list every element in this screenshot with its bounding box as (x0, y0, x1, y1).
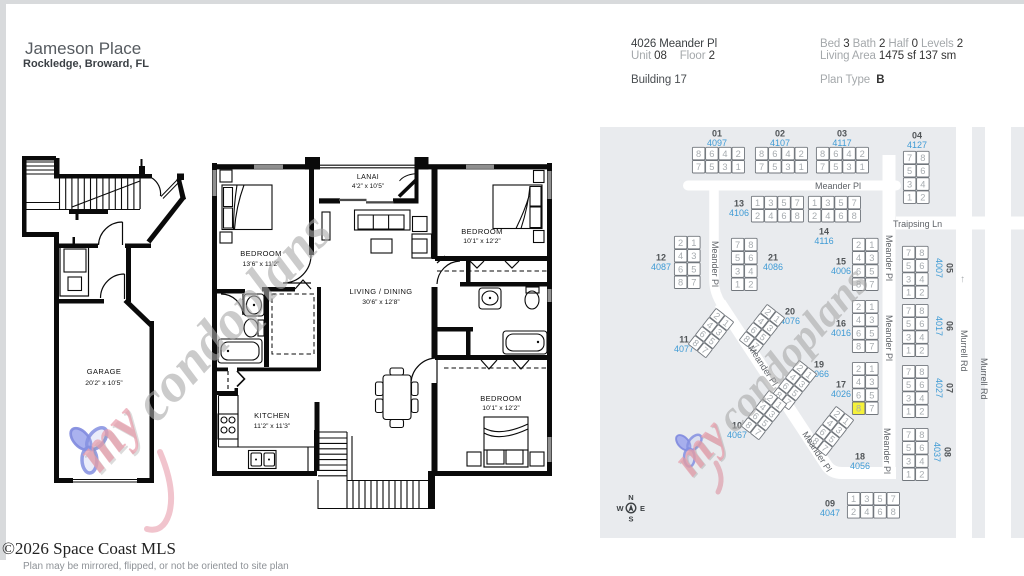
svg-text:1: 1 (906, 346, 911, 356)
svg-text:3: 3 (907, 179, 912, 189)
svg-text:07: 07 (945, 383, 955, 393)
svg-text:2: 2 (919, 407, 924, 417)
svg-text:6: 6 (709, 149, 714, 159)
svg-text:2: 2 (736, 149, 741, 159)
svg-text:4007: 4007 (934, 258, 944, 278)
svg-text:4: 4 (678, 251, 683, 261)
svg-text:Traipsing Ln: Traipsing Ln (893, 219, 942, 229)
svg-text:7: 7 (907, 153, 912, 163)
svg-text:5: 5 (906, 380, 911, 390)
svg-text:Meander Pl: Meander Pl (882, 428, 892, 474)
svg-text:Meander Pl: Meander Pl (884, 235, 894, 281)
svg-text:3: 3 (768, 198, 773, 208)
svg-text:7: 7 (696, 162, 701, 172)
svg-text:LANAI: LANAI (357, 174, 379, 181)
svg-text:8: 8 (852, 211, 857, 221)
svg-text:5: 5 (735, 253, 740, 263)
svg-text:4: 4 (722, 149, 727, 159)
svg-text:8: 8 (856, 404, 861, 414)
svg-text:4107: 4107 (770, 138, 790, 148)
svg-text:8: 8 (759, 149, 764, 159)
svg-text:3: 3 (825, 198, 830, 208)
svg-text:4: 4 (785, 149, 790, 159)
svg-text:6: 6 (920, 166, 925, 176)
svg-text:12: 12 (656, 253, 666, 263)
svg-text:5: 5 (781, 198, 786, 208)
svg-text:18: 18 (855, 452, 865, 462)
svg-text:7: 7 (795, 198, 800, 208)
svg-text:8: 8 (919, 248, 924, 258)
svg-text:1: 1 (906, 288, 911, 298)
svg-text:E: E (640, 504, 645, 513)
svg-text:8: 8 (919, 430, 924, 440)
svg-text:1: 1 (691, 238, 696, 248)
svg-text:10’1” x 12’2”: 10’1” x 12’2” (482, 405, 520, 412)
svg-text:BEDROOM: BEDROOM (480, 394, 522, 403)
svg-text:4037: 4037 (932, 442, 942, 462)
svg-text:1: 1 (869, 240, 874, 250)
svg-text:7: 7 (906, 367, 911, 377)
svg-text:7: 7 (759, 162, 764, 172)
svg-text:10’1” x 12’2”: 10’1” x 12’2” (463, 238, 501, 245)
svg-text:3: 3 (869, 377, 874, 387)
svg-text:2: 2 (856, 240, 861, 250)
svg-text:2: 2 (799, 149, 804, 159)
svg-text:6: 6 (919, 443, 924, 453)
svg-text:1: 1 (812, 198, 817, 208)
svg-text:30’6” x 12’8”: 30’6” x 12’8” (362, 299, 400, 306)
svg-text:Meander Pl: Meander Pl (815, 181, 861, 191)
svg-text:8: 8 (795, 211, 800, 221)
svg-text:6: 6 (856, 390, 861, 400)
svg-text:4: 4 (864, 507, 869, 517)
svg-text:2: 2 (860, 149, 865, 159)
svg-text:4’2” x 10’5”: 4’2” x 10’5” (352, 183, 384, 190)
svg-text:4: 4 (919, 274, 924, 284)
svg-text:06: 06 (945, 321, 955, 331)
svg-text:20’2” x 10’5”: 20’2” x 10’5” (85, 380, 123, 387)
svg-text:6: 6 (919, 380, 924, 390)
svg-text:6: 6 (833, 149, 838, 159)
svg-text:7: 7 (891, 494, 896, 504)
svg-text:7: 7 (852, 198, 857, 208)
svg-text:2: 2 (920, 193, 925, 203)
svg-text:2: 2 (919, 288, 924, 298)
svg-text:4027: 4027 (934, 378, 944, 398)
svg-text:02: 02 (775, 129, 785, 139)
svg-text:LIVING / DINING: LIVING / DINING (349, 287, 412, 296)
svg-text:3: 3 (864, 494, 869, 504)
svg-text:5: 5 (907, 166, 912, 176)
svg-text:N: N (628, 493, 633, 502)
svg-text:4: 4 (920, 179, 925, 189)
svg-text:4026: 4026 (831, 389, 851, 399)
svg-text:6: 6 (877, 507, 882, 517)
svg-text:4127: 4127 (907, 140, 927, 150)
svg-text:4: 4 (919, 456, 924, 466)
svg-text:11’2” x 11’3”: 11’2” x 11’3” (254, 423, 291, 430)
svg-text:3: 3 (869, 253, 874, 263)
svg-text:01: 01 (712, 129, 722, 139)
svg-text:1: 1 (735, 280, 740, 290)
svg-text:05: 05 (945, 263, 955, 273)
svg-text:3: 3 (906, 456, 911, 466)
svg-text:5: 5 (833, 162, 838, 172)
svg-text:4: 4 (856, 253, 861, 263)
svg-text:4: 4 (856, 315, 861, 325)
svg-text:4: 4 (856, 377, 861, 387)
svg-text:W: W (616, 504, 624, 513)
svg-text:5: 5 (869, 328, 874, 338)
svg-text:4: 4 (825, 211, 830, 221)
svg-text:3: 3 (735, 266, 740, 276)
svg-text:KITCHEN: KITCHEN (254, 411, 290, 420)
svg-text:Murrell Rd: Murrell Rd (979, 358, 989, 400)
svg-text:3: 3 (846, 162, 851, 172)
svg-text:09: 09 (825, 499, 835, 509)
svg-text:7: 7 (906, 248, 911, 258)
svg-text:3: 3 (869, 315, 874, 325)
svg-text:2: 2 (851, 507, 856, 517)
svg-text:4117: 4117 (832, 138, 851, 148)
svg-text:2: 2 (755, 211, 760, 221)
svg-text:2: 2 (748, 280, 753, 290)
svg-text:2: 2 (856, 364, 861, 374)
svg-text:1: 1 (869, 364, 874, 374)
svg-text:6: 6 (678, 264, 683, 274)
svg-text:Murrell Rd: Murrell Rd (959, 330, 969, 372)
svg-text:1: 1 (755, 198, 760, 208)
svg-text:5: 5 (838, 198, 843, 208)
svg-text:8: 8 (919, 306, 924, 316)
svg-text:7: 7 (906, 430, 911, 440)
svg-text:8: 8 (891, 507, 896, 517)
svg-text:3: 3 (906, 393, 911, 403)
svg-text:3: 3 (906, 274, 911, 284)
svg-text:03: 03 (837, 129, 847, 139)
svg-text:21: 21 (768, 253, 778, 263)
svg-text:5: 5 (709, 162, 714, 172)
svg-text:8: 8 (919, 367, 924, 377)
svg-text:5: 5 (691, 264, 696, 274)
svg-text:1: 1 (869, 302, 874, 312)
svg-text:4: 4 (748, 266, 753, 276)
svg-text:4: 4 (768, 211, 773, 221)
svg-text:6: 6 (748, 253, 753, 263)
svg-text:2: 2 (812, 211, 817, 221)
svg-text:5: 5 (869, 266, 874, 276)
svg-text:1: 1 (906, 407, 911, 417)
svg-text:19: 19 (814, 360, 824, 370)
svg-text:4086: 4086 (763, 262, 783, 272)
svg-text:3: 3 (691, 251, 696, 261)
svg-text:4087: 4087 (651, 262, 671, 272)
svg-text:5: 5 (906, 319, 911, 329)
svg-text:7: 7 (869, 404, 874, 414)
svg-text:7: 7 (869, 342, 874, 352)
svg-text:5: 5 (906, 261, 911, 271)
svg-text:4: 4 (846, 149, 851, 159)
svg-text:1: 1 (851, 494, 856, 504)
svg-text:1: 1 (736, 162, 741, 172)
svg-text:5: 5 (906, 443, 911, 453)
svg-text:7: 7 (820, 162, 825, 172)
svg-text:5: 5 (877, 494, 882, 504)
svg-text:2: 2 (678, 238, 683, 248)
svg-text:4056: 4056 (850, 461, 870, 471)
svg-text:8: 8 (920, 153, 925, 163)
svg-text:4017: 4017 (934, 316, 944, 336)
svg-text:5: 5 (772, 162, 777, 172)
svg-text:4116: 4116 (814, 236, 833, 246)
svg-text:8: 8 (696, 149, 701, 159)
svg-text:08: 08 (943, 447, 953, 457)
svg-text:7: 7 (735, 240, 740, 250)
svg-text:6: 6 (838, 211, 843, 221)
svg-text:04: 04 (912, 131, 922, 141)
svg-text:GARAGE: GARAGE (87, 367, 122, 376)
svg-text:4: 4 (919, 393, 924, 403)
svg-text:3: 3 (906, 332, 911, 342)
svg-text:↑: ↑ (960, 274, 965, 285)
svg-text:7: 7 (906, 306, 911, 316)
svg-text:4: 4 (919, 332, 924, 342)
svg-text:BEDROOM: BEDROOM (461, 227, 503, 236)
svg-text:8: 8 (678, 278, 683, 288)
svg-text:1: 1 (907, 193, 912, 203)
svg-text:7: 7 (691, 278, 696, 288)
svg-text:1: 1 (906, 470, 911, 480)
svg-text:6: 6 (919, 319, 924, 329)
svg-text:8: 8 (820, 149, 825, 159)
svg-text:2: 2 (919, 346, 924, 356)
svg-text:5: 5 (869, 390, 874, 400)
svg-text:6: 6 (772, 149, 777, 159)
svg-text:1: 1 (860, 162, 865, 172)
svg-text:4047: 4047 (820, 508, 840, 518)
svg-text:8: 8 (856, 342, 861, 352)
svg-text:6: 6 (919, 261, 924, 271)
svg-text:6: 6 (856, 328, 861, 338)
svg-text:4097: 4097 (707, 138, 727, 148)
svg-text:S: S (628, 515, 633, 524)
svg-text:11: 11 (679, 335, 689, 345)
svg-text:2: 2 (919, 470, 924, 480)
svg-text:17: 17 (836, 380, 846, 390)
svg-text:1: 1 (799, 162, 804, 172)
svg-text:3: 3 (785, 162, 790, 172)
svg-text:13: 13 (734, 199, 744, 209)
svg-text:6: 6 (781, 211, 786, 221)
svg-text:14: 14 (819, 227, 829, 237)
svg-text:4106: 4106 (729, 208, 749, 218)
svg-text:8: 8 (748, 240, 753, 250)
svg-text:Meander Pl: Meander Pl (710, 241, 720, 287)
svg-text:Meander Pl: Meander Pl (884, 315, 894, 361)
svg-text:3: 3 (722, 162, 727, 172)
